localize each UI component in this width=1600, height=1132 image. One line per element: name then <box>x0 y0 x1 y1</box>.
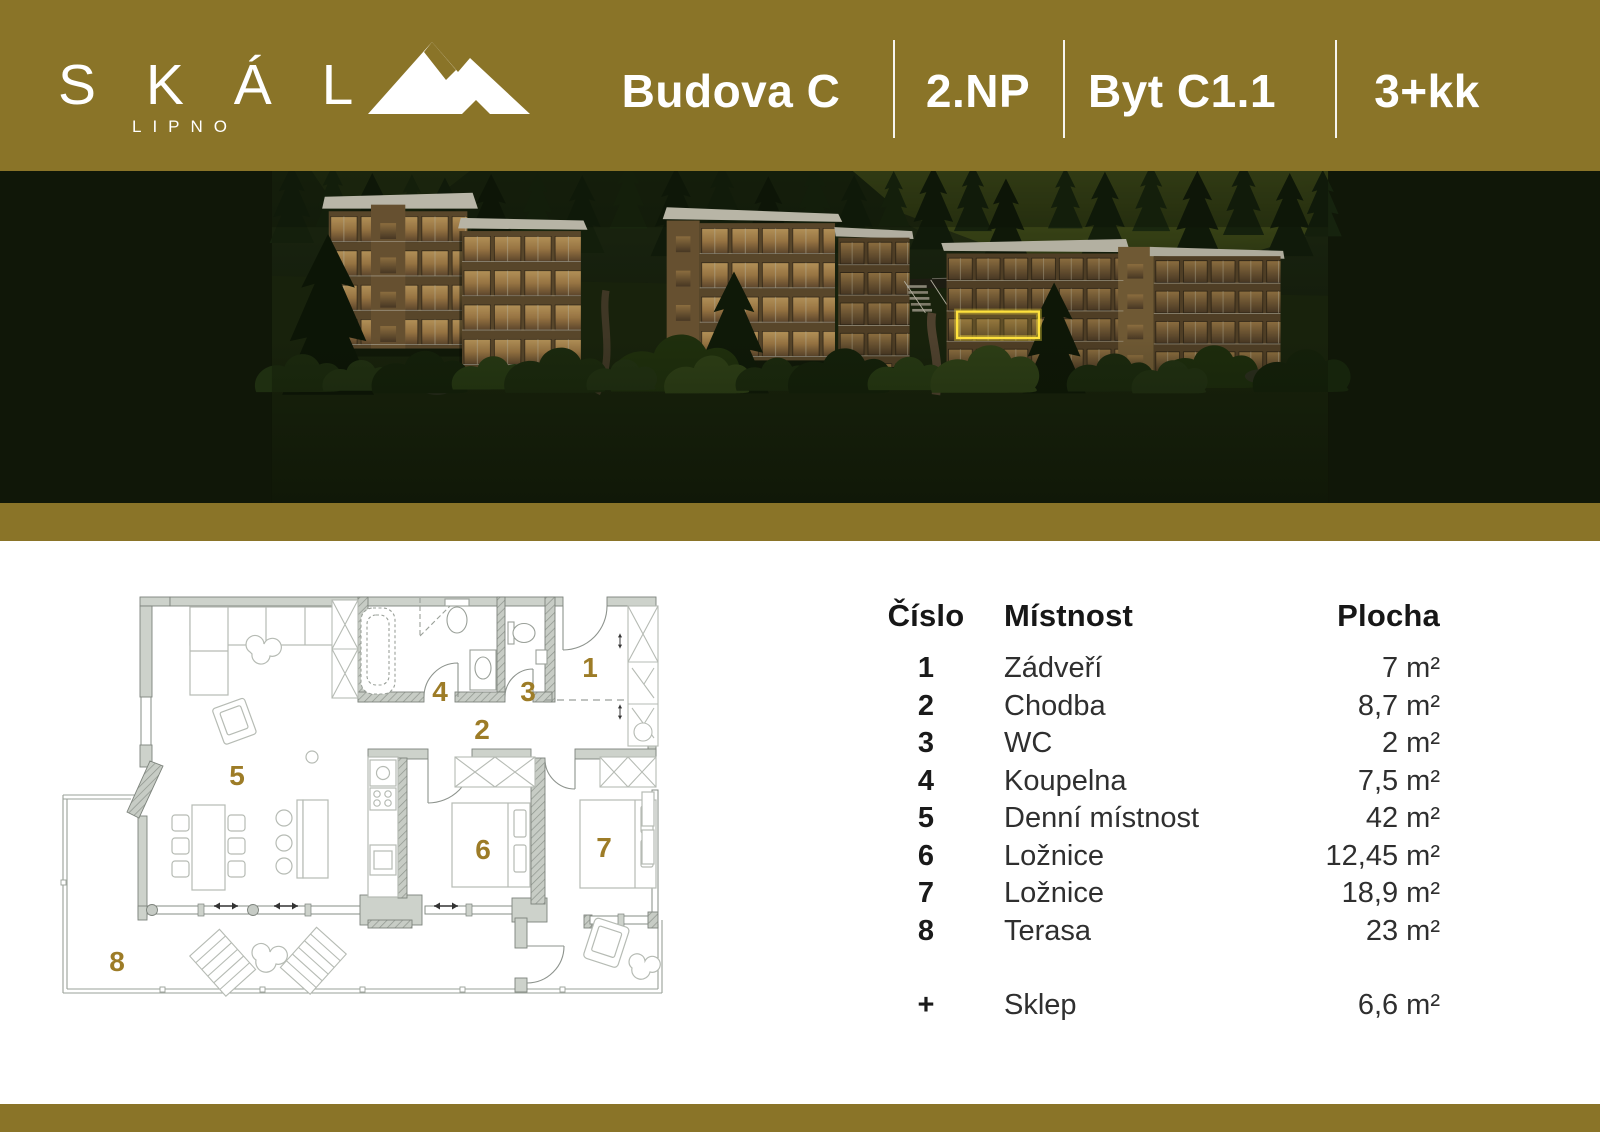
row-area: 12,45 m² <box>1280 840 1440 873</box>
header-building: Budova C <box>622 64 841 118</box>
legend-row: 1 Zádveří 7 m² <box>880 650 1440 688</box>
hero-image <box>0 171 1600 503</box>
room-number-label: 2 <box>474 714 490 745</box>
legend-row: 6 Ložnice 12,45 m² <box>880 838 1440 876</box>
header-layout: 3+kk <box>1374 64 1480 118</box>
room-number-label: 3 <box>520 676 536 707</box>
room-number-label: 4 <box>432 676 448 707</box>
legend-row: 4 Koupelna 7,5 m² <box>880 763 1440 801</box>
footer-bar <box>0 1104 1600 1132</box>
row-number: 8 <box>880 915 972 948</box>
row-number: + <box>880 989 972 1022</box>
row-area: 18,9 m² <box>1280 877 1440 910</box>
brand-name: S K Á L <box>58 57 370 114</box>
brand-logo: S K Á L LIPNO <box>58 36 538 137</box>
room-number-label: 8 <box>109 946 125 977</box>
row-room: Koupelna <box>972 765 1280 798</box>
mountain-icon <box>366 36 538 116</box>
row-room: Terasa <box>972 915 1280 948</box>
row-number: 2 <box>880 690 972 723</box>
row-number: 3 <box>880 727 972 760</box>
row-room: Ložnice <box>972 840 1280 873</box>
legend-header-number: Číslo <box>880 598 972 634</box>
room-number-label: 5 <box>229 760 245 791</box>
terrace-railing <box>63 795 662 993</box>
row-number: 4 <box>880 765 972 798</box>
row-area: 2 m² <box>1280 727 1440 760</box>
legend-row: 2 Chodba 8,7 m² <box>880 688 1440 726</box>
legend-row: 3 WC 2 m² <box>880 725 1440 763</box>
bath-fixtures <box>361 598 547 694</box>
row-room: Ložnice <box>972 877 1280 910</box>
header-divider <box>1335 40 1337 138</box>
row-room: Sklep <box>972 989 1280 1022</box>
header: S K Á L LIPNO Budova C 2.NP Byt C1.1 3+k… <box>0 0 1600 171</box>
room-number-label: 7 <box>596 832 612 863</box>
header-divider <box>893 40 895 138</box>
row-area: 6,6 m² <box>1280 989 1440 1022</box>
hero-rendering <box>0 171 1600 503</box>
row-number: 1 <box>880 652 972 685</box>
highlight-box <box>957 312 1039 338</box>
room-number-label: 1 <box>582 652 598 683</box>
floorplan-svg: 1 2 3 4 5 6 7 8 <box>55 583 675 1003</box>
legend-row: 7 Ložnice 18,9 m² <box>880 875 1440 913</box>
legend-row: 8 Terasa 23 m² <box>880 913 1440 951</box>
legend-extra-row: + Sklep 6,6 m² <box>880 987 1440 1025</box>
legend-row: 5 Denní místnost 42 m² <box>880 800 1440 838</box>
row-area: 7,5 m² <box>1280 765 1440 798</box>
header-divider <box>1063 40 1065 138</box>
row-room: Zádveří <box>972 652 1280 685</box>
header-floor: 2.NP <box>926 64 1030 118</box>
brochure-page: S K Á L LIPNO Budova C 2.NP Byt C1.1 3+k… <box>0 0 1600 1132</box>
row-number: 5 <box>880 802 972 835</box>
gold-divider-bar <box>0 503 1600 541</box>
row-area: 42 m² <box>1280 802 1440 835</box>
row-room: Chodba <box>972 690 1280 723</box>
row-area: 23 m² <box>1280 915 1440 948</box>
row-room: WC <box>972 727 1280 760</box>
room-number-label: 6 <box>475 834 491 865</box>
row-area: 8,7 m² <box>1280 690 1440 723</box>
row-number: 6 <box>880 840 972 873</box>
legend-header-room: Místnost <box>972 598 1280 634</box>
row-room: Denní místnost <box>972 802 1280 835</box>
row-area: 7 m² <box>1280 652 1440 685</box>
legend-header-area: Plocha <box>1280 598 1440 634</box>
brand-subtitle: LIPNO <box>132 117 538 137</box>
legend-header-row: Číslo Místnost Plocha <box>880 598 1440 634</box>
room-legend: Číslo Místnost Plocha 1 Zádveří 7 m² 2 C… <box>880 598 1440 1025</box>
header-unit: Byt C1.1 <box>1088 64 1276 118</box>
row-number: 7 <box>880 877 972 910</box>
